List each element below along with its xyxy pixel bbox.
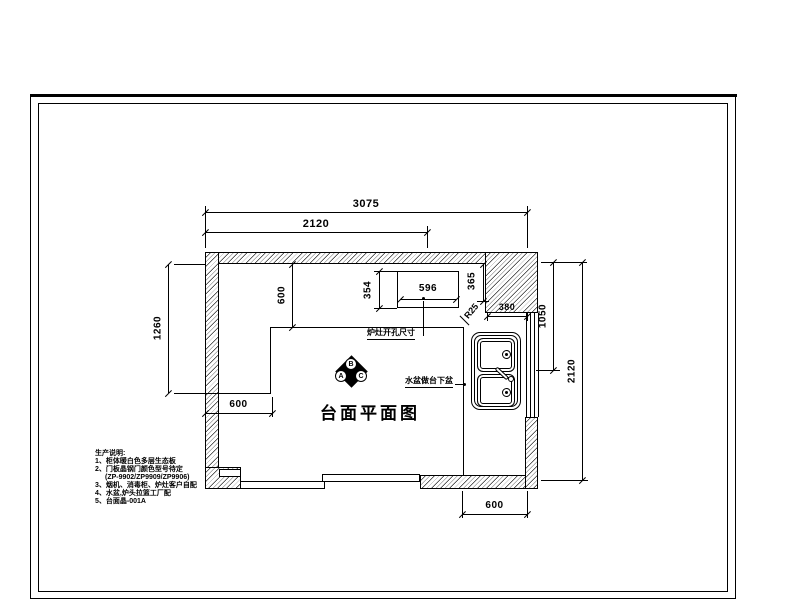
dim-600-left: 600	[205, 399, 272, 410]
sink-label: 水盆做台下盆	[405, 375, 453, 388]
frame-inner	[38, 103, 728, 592]
sink-faucet-base-icon	[508, 376, 514, 382]
note-item: 5、台面晶-001A	[95, 498, 265, 506]
cutout-center-dot	[422, 297, 425, 300]
drawing-sheet: 596 炉灶开孔尺寸 354 365 380 R25 3075 2120 126…	[0, 0, 792, 612]
notes-heading: 生产说明:	[95, 450, 265, 458]
wall-top	[205, 252, 486, 264]
dim-1050: 1050	[538, 304, 549, 328]
sink-drain-icon	[502, 388, 511, 397]
window-line-2	[534, 313, 535, 417]
dim-365: 365	[467, 272, 478, 290]
dim-354-line	[379, 271, 380, 308]
dim-600-bottom: 600	[462, 500, 527, 511]
marker-letter-b: B	[348, 361, 353, 368]
dim-354: 354	[363, 281, 374, 299]
marker-letter-a: A	[338, 373, 343, 380]
dim-2120-right-line	[582, 262, 583, 480]
sink-drain-icon	[502, 350, 511, 359]
dim-600-bottom-line	[462, 514, 527, 515]
dim-596-line	[400, 299, 456, 300]
dim-600-depth: 600	[277, 286, 288, 304]
drawing-title: 台面平面图	[320, 399, 420, 424]
dim-365-line	[483, 264, 484, 301]
dim-1050-line	[553, 262, 554, 370]
note-item: 3、烟机、消毒柜、炉灶客户自配	[95, 482, 265, 490]
marker-circle-a: A	[335, 370, 347, 382]
ext-line	[174, 393, 219, 394]
dim-1260: 1260	[153, 316, 164, 340]
dim-2120-top-line	[205, 232, 427, 233]
window-line-1	[530, 313, 531, 417]
ext-line	[536, 370, 560, 371]
ext-line	[427, 226, 428, 248]
sink-counter-left-edge	[463, 327, 464, 475]
production-notes: 生产说明: 1、柜体暖白色多层生态板 2、门板晶钢门颜色型号待定 (ZP-990…	[95, 450, 265, 506]
dim-3075: 3075	[205, 198, 527, 210]
window-right	[526, 313, 539, 417]
cooktop-cutout-label: 炉灶开孔尺寸	[367, 327, 415, 340]
dim-600-depth-line	[292, 264, 293, 327]
sink-label-dot	[463, 383, 466, 386]
note-item: 2、门板晶钢门颜色型号待定	[95, 466, 265, 474]
marker-circle-b: B	[345, 358, 357, 370]
note-item: (ZP-9902/ZP9909/ZP9906)	[95, 474, 265, 482]
dim-380: 380	[487, 302, 527, 312]
left-counter-right-edge	[270, 327, 271, 393]
note-item: 1、柜体暖白色多层生态板	[95, 458, 265, 466]
ext-line	[174, 264, 205, 265]
dim-1260-line	[168, 264, 169, 393]
wall-bottom-right	[420, 475, 538, 489]
dim-3075-line	[205, 212, 527, 213]
wall-right-lower	[525, 417, 538, 489]
marker-circle-c: C	[355, 370, 367, 382]
cutout-leader	[423, 301, 424, 336]
dim-380-line	[487, 316, 527, 317]
dim-2120-top: 2120	[205, 218, 427, 230]
door-panel-right	[322, 474, 420, 482]
dim-596: 596	[397, 283, 459, 294]
dim-600-left-line	[205, 413, 272, 414]
marker-letter-c: C	[358, 373, 363, 380]
note-item: 4、水盆,炉头拉篮工厂配	[95, 490, 265, 498]
dim-2120-right: 2120	[567, 359, 578, 383]
left-counter-bottom-edge	[219, 393, 271, 394]
